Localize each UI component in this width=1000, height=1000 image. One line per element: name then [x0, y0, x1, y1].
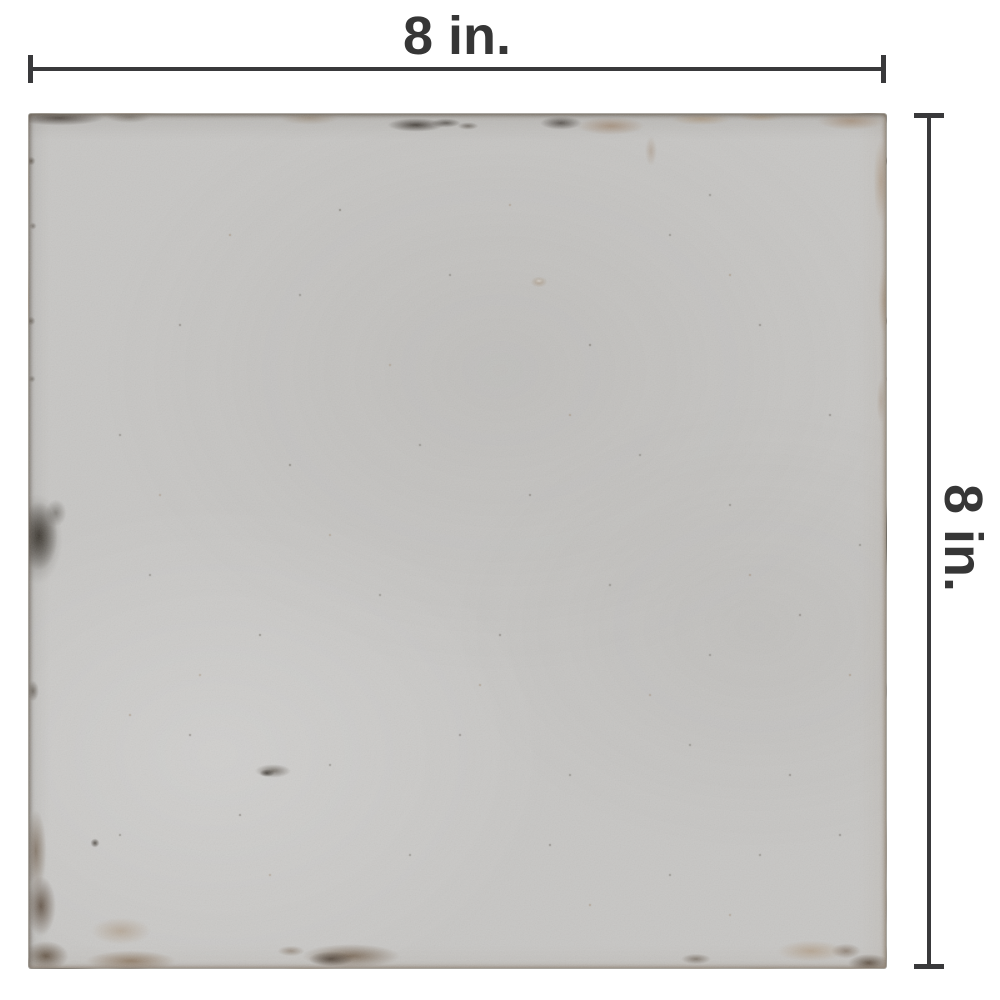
- width-endcap-right-icon: [881, 55, 886, 83]
- tile-photo: [28, 113, 887, 969]
- height-dimension-label: 8 in.: [936, 484, 990, 592]
- width-dimension-label: 8 in.: [403, 9, 511, 63]
- tile-speckles: [29, 114, 31, 116]
- product-dimension-figure: 8 in. 8 in.: [0, 0, 1000, 1000]
- width-endcap-left-icon: [28, 55, 33, 83]
- height-endcap-bottom-icon: [914, 964, 944, 969]
- width-dimension-line: [30, 67, 884, 71]
- grain-texture-overlay: [29, 114, 886, 968]
- height-dimension-line: [927, 116, 931, 966]
- height-endcap-top-icon: [914, 113, 944, 118]
